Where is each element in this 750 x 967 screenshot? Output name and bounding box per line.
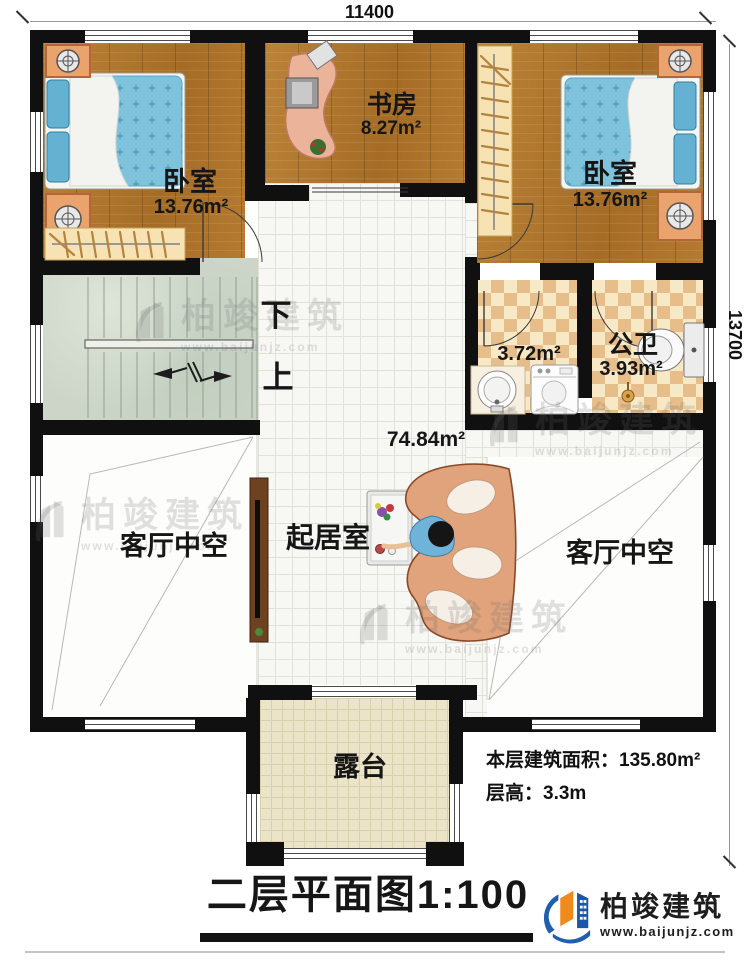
room-label-living: 起居室 (286, 523, 370, 552)
study-desk (286, 41, 337, 159)
floor-area-value: 135.80m² (619, 750, 700, 771)
floor-height-label: 层高： (486, 783, 543, 804)
room-label-toilet: 公卫 (608, 332, 658, 358)
closet-right (478, 46, 512, 236)
floor-area-label: 本层建筑面积： (486, 750, 619, 771)
room-area-study: 8.27m² (361, 119, 421, 139)
floor-height-note: 层高：3.3m (486, 778, 586, 805)
floor-drain (622, 382, 634, 402)
sink (471, 366, 525, 414)
tv (255, 500, 260, 618)
room-area-bedroom-right: 13.76m² (573, 190, 648, 211)
plan-linework (0, 0, 750, 967)
room-area-washroom: 3.72m² (497, 344, 560, 365)
washing-machine (531, 365, 578, 414)
room-label-terrace: 露台 (333, 753, 387, 781)
stair-direction-arrows (170, 362, 216, 382)
floorplan-page: 11400 13700 (0, 0, 750, 967)
title-underline (200, 933, 533, 942)
brand-logo-icon (536, 884, 592, 946)
room-area-bedroom-left: 13.76m² (154, 197, 229, 218)
plant (255, 628, 263, 636)
room-label-void-right: 客厅中空 (566, 539, 674, 567)
brand-name: 柏竣建筑 (600, 893, 735, 921)
stairs-down-label: 下 (261, 300, 292, 333)
door-washroom (484, 291, 539, 346)
room-area-toilet: 3.93m² (599, 359, 662, 380)
brand-url: www.baijunjz.com (600, 925, 735, 938)
floor-height-value: 3.3m (543, 783, 586, 804)
staircase (85, 277, 253, 418)
footer-divider (25, 951, 725, 953)
room-label-bedroom-right: 卧室 (583, 160, 637, 188)
room-label-bedroom-left: 卧室 (163, 168, 217, 196)
plant (310, 139, 326, 155)
door-study-sliding (312, 188, 408, 192)
room-label-void-left: 客厅中空 (120, 532, 228, 560)
brand-logo: 柏竣建筑 www.baijunjz.com (536, 884, 735, 946)
dimension-height: 13700 (724, 310, 745, 360)
tv-cabinet (250, 478, 268, 642)
dimension-width: 11400 (345, 2, 394, 23)
room-area-living: 74.84m² (387, 429, 465, 451)
person-head (428, 521, 454, 547)
stairs-up-label: 上 (263, 362, 294, 395)
room-label-study: 书房 (367, 92, 417, 118)
floor-area-note: 本层建筑面积：135.80m² (486, 745, 700, 772)
wardrobe-left (45, 228, 185, 260)
page-title: 二层平面图1:100 (207, 874, 529, 916)
